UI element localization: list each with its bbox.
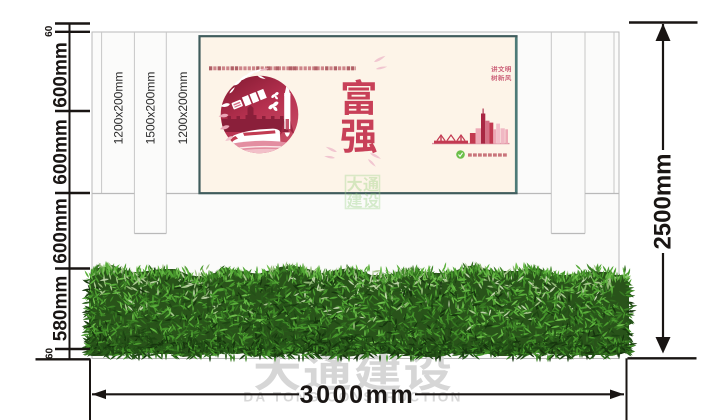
svg-text:600mm: 600mm <box>51 119 72 185</box>
svg-text:1200x200mm: 1200x200mm <box>111 72 125 145</box>
svg-text:2500mm: 2500mm <box>650 153 677 249</box>
svg-text:600mm: 600mm <box>51 42 72 108</box>
svg-text:1200x200mm: 1200x200mm <box>176 72 190 145</box>
svg-text:60: 60 <box>44 25 55 37</box>
svg-text:3000mm: 3000mm <box>300 381 416 409</box>
svg-text:580mm: 580mm <box>51 276 72 342</box>
svg-text:600mm: 600mm <box>51 198 72 264</box>
svg-text:1500x200mm: 1500x200mm <box>143 72 157 145</box>
svg-text:60: 60 <box>45 348 56 360</box>
